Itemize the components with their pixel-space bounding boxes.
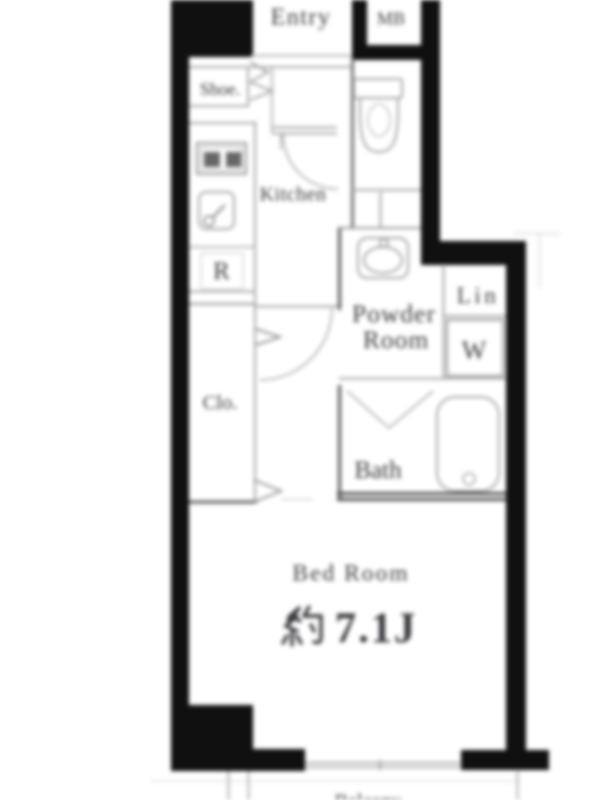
svg-text:R: R	[213, 258, 230, 285]
svg-text:MB: MB	[377, 9, 405, 29]
svg-text:Shoe.: Shoe.	[200, 79, 241, 99]
svg-text:Kitchen: Kitchen	[260, 184, 327, 206]
svg-text:Balcony: Balcony	[335, 791, 402, 800]
svg-text:W: W	[462, 336, 487, 365]
svg-text:Entry: Entry	[271, 5, 332, 31]
svg-text:7.1J: 7.1J	[335, 605, 417, 652]
svg-text:Powder: Powder	[352, 299, 436, 328]
svg-text:Bath: Bath	[354, 457, 402, 484]
svg-text:Bed Room: Bed Room	[292, 561, 409, 587]
svg-text:Lin: Lin	[457, 283, 499, 308]
svg-text:Room: Room	[363, 325, 429, 354]
svg-text:Clo.: Clo.	[203, 392, 238, 414]
